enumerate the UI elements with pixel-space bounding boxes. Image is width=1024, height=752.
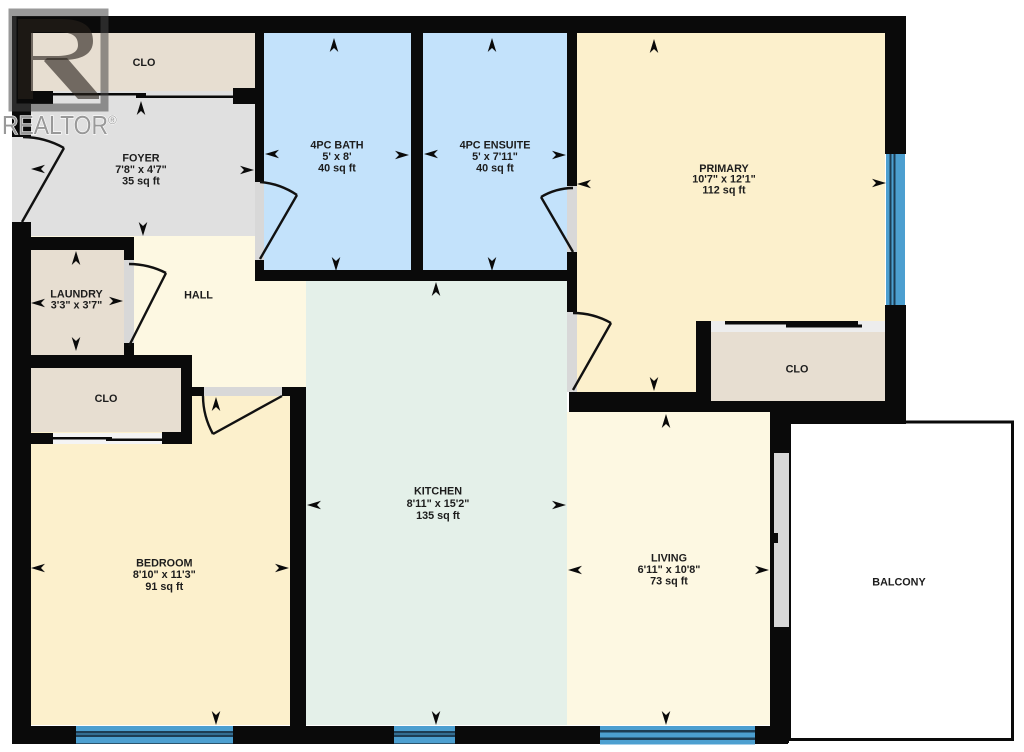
svg-text:CLO: CLO — [133, 57, 156, 69]
svg-text:4PC BATH: 4PC BATH — [310, 140, 363, 152]
svg-text:HALL: HALL — [184, 289, 213, 301]
svg-text:5' x 7'11": 5' x 7'11" — [472, 151, 518, 163]
svg-text:4PC ENSUITE: 4PC ENSUITE — [460, 140, 531, 152]
svg-text:KITCHEN: KITCHEN — [414, 486, 462, 498]
svg-text:®: ® — [108, 113, 117, 127]
svg-text:CLO: CLO — [786, 364, 809, 376]
svg-text:FOYER: FOYER — [122, 153, 159, 165]
svg-text:5' x 8': 5' x 8' — [322, 151, 352, 163]
svg-text:112 sq ft: 112 sq ft — [702, 185, 746, 197]
svg-text:REALTOR: REALTOR — [2, 112, 108, 140]
svg-text:35 sq ft: 35 sq ft — [122, 176, 160, 188]
svg-text:3'3" x 3'7": 3'3" x 3'7" — [51, 299, 102, 311]
svg-text:135 sq ft: 135 sq ft — [416, 510, 460, 522]
svg-text:6'11" x 10'8": 6'11" x 10'8" — [638, 564, 701, 576]
svg-text:40 sq ft: 40 sq ft — [318, 162, 356, 174]
svg-text:73 sq ft: 73 sq ft — [650, 575, 688, 587]
svg-text:CLO: CLO — [95, 393, 118, 405]
svg-text:8'10" x 11'3": 8'10" x 11'3" — [133, 569, 196, 581]
svg-text:BEDROOM: BEDROOM — [136, 558, 192, 570]
svg-text:LIVING: LIVING — [651, 553, 687, 565]
svg-text:BALCONY: BALCONY — [872, 577, 926, 589]
svg-text:91 sq ft: 91 sq ft — [145, 581, 183, 593]
svg-text:7'8" x 4'7": 7'8" x 4'7" — [115, 164, 166, 176]
svg-text:40 sq ft: 40 sq ft — [476, 162, 514, 174]
svg-text:8'11" x 15'2": 8'11" x 15'2" — [407, 498, 470, 510]
